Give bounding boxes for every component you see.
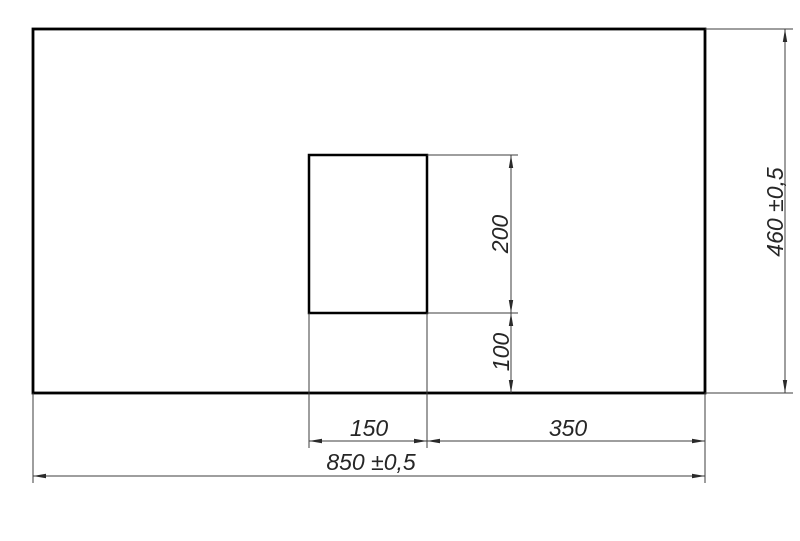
arrowhead-icon [509, 313, 513, 326]
arrowhead-icon [33, 474, 46, 478]
arrowhead-icon [509, 380, 513, 393]
dimension-cutout-bottom-offset: 100 [488, 313, 514, 393]
dimension-label: 350 [549, 415, 588, 441]
cutout-outline [309, 155, 427, 313]
dimension-label: 150 [350, 415, 389, 441]
dimension-label: 200 [487, 215, 513, 255]
arrowhead-icon [692, 474, 705, 478]
dimension-label: 100 [488, 333, 514, 372]
arrowhead-icon [692, 439, 705, 443]
technical-drawing: 200 100 150 350 850 ±0,5 [0, 0, 800, 541]
arrowhead-icon [427, 439, 440, 443]
dimension-cutout-right-offset: 350 [427, 415, 705, 443]
arrowhead-icon [509, 300, 513, 313]
arrowhead-icon [414, 439, 427, 443]
drawing-svg: 200 100 150 350 850 ±0,5 [0, 0, 800, 541]
dimension-cutout-width: 150 [309, 415, 427, 443]
arrowhead-icon [783, 29, 787, 42]
dimension-label: 460 ±0,5 [762, 167, 788, 257]
dimension-cutout-height: 200 [487, 155, 513, 313]
dimension-overall-width: 850 ±0,5 [33, 449, 705, 478]
arrowhead-icon [309, 439, 322, 443]
extension-lines [33, 29, 793, 483]
dimension-overall-height: 460 ±0,5 [762, 29, 788, 393]
arrowhead-icon [509, 155, 513, 168]
arrowhead-icon [783, 380, 787, 393]
panel-outline [33, 29, 705, 393]
dimension-label: 850 ±0,5 [326, 449, 416, 475]
